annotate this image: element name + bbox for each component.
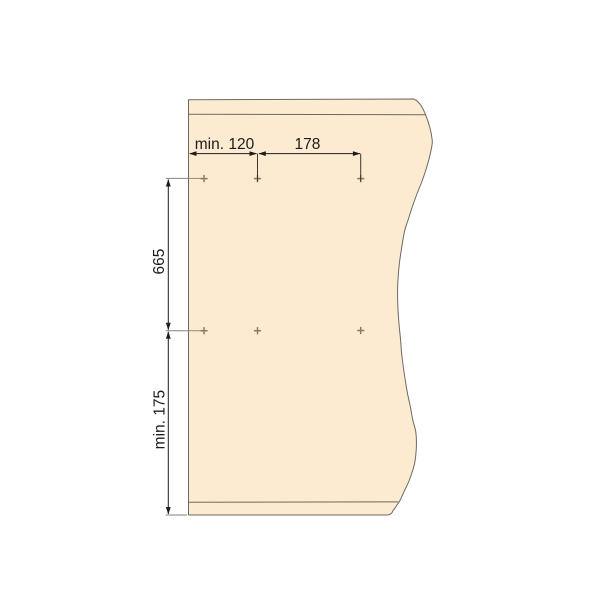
svg-text:min. 175: min. 175	[152, 390, 169, 449]
svg-text:665: 665	[151, 249, 168, 275]
svg-text:min. 120: min. 120	[195, 136, 255, 153]
svg-text:178: 178	[294, 136, 320, 153]
